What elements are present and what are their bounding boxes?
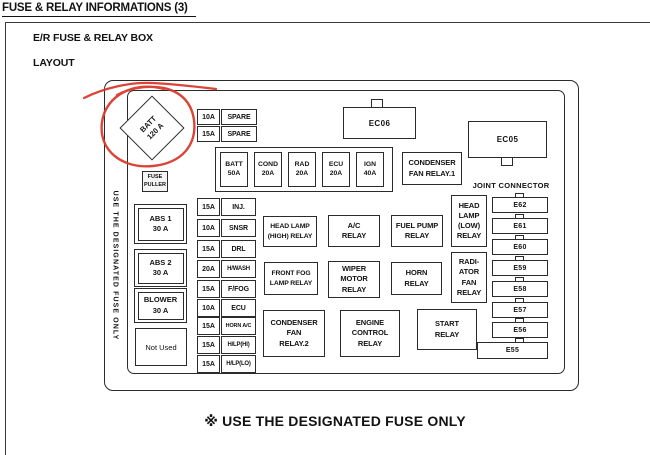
fuse-row-hlp-hi: 15A H/LP(HI) — [197, 336, 256, 354]
fuse-cond-20a: COND 20A — [254, 152, 282, 187]
fuse-label: INJ. — [221, 198, 256, 216]
connector-ec06: EC06 — [343, 107, 416, 139]
relay-condenser-fan-1: CONDENSER FAN RELAY.1 — [402, 152, 462, 185]
fuse-abs2: ABS 2 30 A — [134, 249, 187, 287]
fuse-puller: FUSE PULLER — [142, 171, 168, 192]
fuse-label: DRL — [221, 240, 256, 258]
fuse-label: H/LP(LO) — [221, 355, 256, 373]
relay-wiper-motor: WIPER MOTOR RELAY — [328, 261, 380, 298]
fuse-batt-50a: BATT 50A — [220, 152, 248, 187]
manual-page: FUSE & RELAY INFORMATIONS (3) E/R FUSE &… — [0, 0, 650, 455]
fuse-amp: 15A — [197, 280, 220, 298]
fuse-row-snsr: 10A SNSR — [197, 219, 256, 237]
fuse-label: F/FOG — [221, 280, 256, 298]
fuse-row-hlp-lo: 15A H/LP(LO) — [197, 355, 256, 373]
relay-head-lamp-low: HEAD LAMP (LOW) RELAY — [451, 195, 487, 247]
fuse-label: SNSR — [221, 219, 256, 237]
relay-radiator-fan: RADI- ATOR FAN RELAY — [451, 252, 487, 303]
fuse-amp: 15A — [197, 126, 220, 142]
relay-fuel-pump: FUEL PUMP RELAY — [391, 215, 443, 247]
fuse-amp: 15A — [197, 240, 220, 258]
box-title: E/R FUSE & RELAY BOX — [33, 32, 153, 44]
fuse-abs1: ABS 1 30 A — [134, 204, 187, 244]
fuse-abs2-label: ABS 2 30 A — [138, 253, 184, 284]
joint-connector-e62: E62 — [492, 197, 548, 213]
relay-ac: A/C RELAY — [328, 215, 380, 247]
joint-connector-e57: E57 — [492, 302, 548, 318]
fuse-label: ECU — [221, 299, 256, 317]
fuse-amp: 10A — [197, 109, 220, 125]
relay-start: START RELAY — [417, 309, 477, 350]
fuse-row-drl: 15A DRL — [197, 240, 256, 258]
joint-connector-e61: E61 — [492, 218, 548, 234]
footer-note: ※ USE THE DESIGNATED FUSE ONLY — [20, 413, 650, 430]
fuse-blower: BLOWER 30 A — [134, 288, 187, 323]
joint-connector-e58: E58 — [492, 281, 548, 297]
fuse-abs1-label: ABS 1 30 A — [138, 208, 184, 241]
fuse-amp: 15A — [197, 355, 220, 373]
fuse-not-used: Not Used — [135, 328, 187, 366]
rim-warning-text: USE THE DESIGNATED FUSE ONLY — [110, 190, 121, 342]
relay-front-fog: FRONT FOG LAMP RELAY — [264, 262, 318, 295]
joint-connector-e55: E55 — [477, 342, 548, 359]
fuse-row-horn-ac: 15A HORN A/C — [197, 317, 256, 335]
joint-connector-e60: E60 — [492, 239, 548, 255]
fuse-amp: 10A — [197, 299, 220, 317]
fuse-label: HORN A/C — [221, 317, 256, 335]
fuse-amp: 15A — [197, 198, 220, 216]
fuse-amp: 15A — [197, 317, 220, 335]
relay-condenser-fan-2: CONDENSER FAN RELAY.2 — [263, 310, 325, 357]
joint-connector-e59: E59 — [492, 260, 548, 276]
fuse-amp: 10A — [197, 219, 220, 237]
fuse-row-ecu: 10A ECU — [197, 299, 256, 317]
fuse-row-spare-1: 10A SPARE — [197, 109, 257, 125]
fuse-amp: 20A — [197, 260, 220, 278]
relay-horn: HORN RELAY — [391, 262, 442, 295]
joint-connector-label: JOINT CONNECTOR — [455, 181, 567, 190]
fuse-ecu-20a: ECU 20A — [322, 152, 350, 187]
fuse-row-ffog: 15A F/FOG — [197, 280, 256, 298]
fuse-amp: 15A — [197, 336, 220, 354]
page-title: FUSE & RELAY INFORMATIONS (3) — [2, 2, 196, 17]
fuse-row-hwash: 20A H/WASH — [197, 260, 256, 278]
relay-engine-control: ENGINE CONTROL RELAY — [340, 310, 400, 357]
fuse-label: H/LP(HI) — [221, 336, 256, 354]
layout-label: LAYOUT — [33, 57, 75, 69]
fuse-blower-label: BLOWER 30 A — [138, 292, 184, 320]
fuse-label: H/WASH — [221, 260, 256, 278]
fuse-row-inj: 15A INJ. — [197, 198, 256, 216]
fuse-ign-40a: IGN 40A — [356, 152, 384, 187]
fuse-label: SPARE — [221, 126, 257, 142]
connector-ec05: EC05 — [468, 121, 547, 158]
fuse-label: SPARE — [221, 109, 257, 125]
relay-head-lamp-high: HEAD LAMP (HIGH) RELAY — [263, 216, 317, 247]
joint-connector-e56: E56 — [492, 322, 548, 338]
fuse-row-spare-2: 15A SPARE — [197, 126, 257, 142]
fuse-rad-20a: RAD 20A — [288, 152, 316, 187]
